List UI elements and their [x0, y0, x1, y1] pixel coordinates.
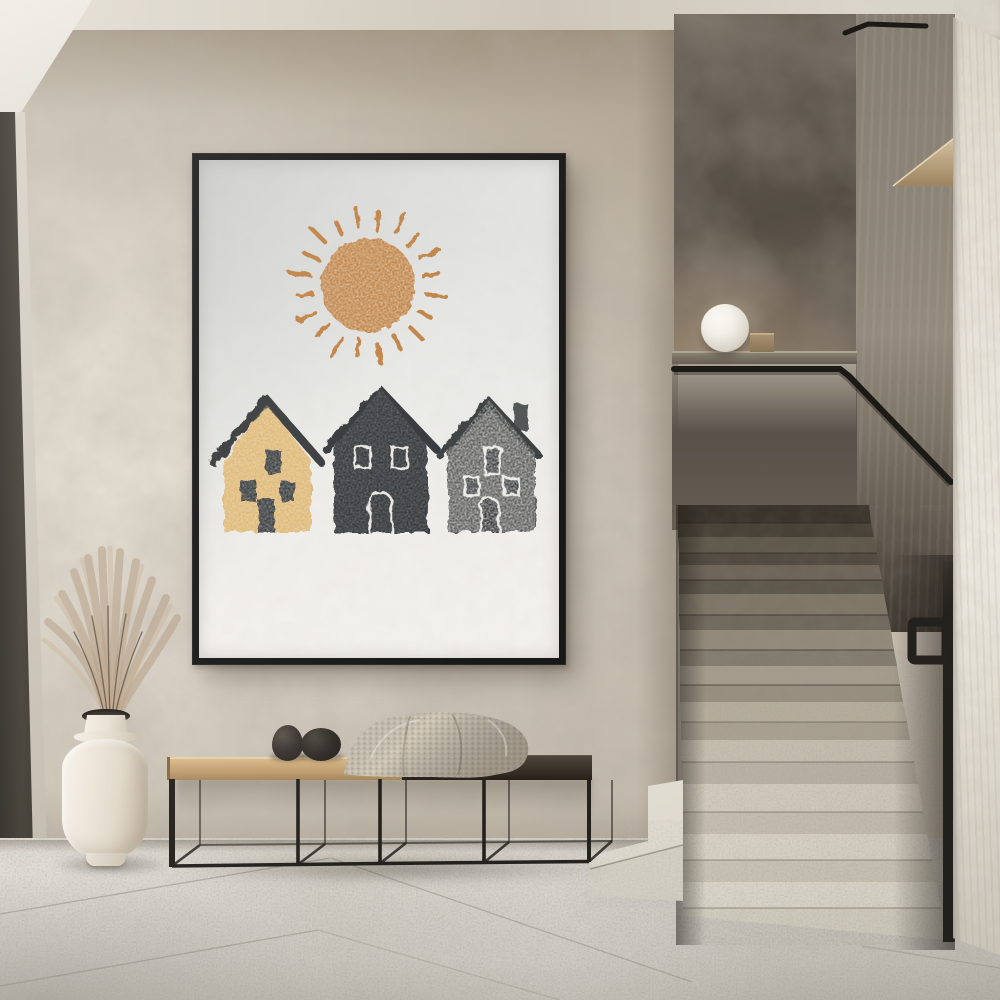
decor-stone-large [301, 728, 341, 761]
upper-floor-rail [845, 24, 926, 33]
poster-frame [192, 153, 566, 665]
vase-foot [86, 853, 126, 866]
poster-artwork [199, 160, 559, 658]
handrails [670, 15, 960, 495]
poster-paper [199, 160, 559, 658]
stair-handrail [674, 369, 951, 482]
right-foreground-wall [953, 0, 1000, 1000]
pampas-grass [25, 530, 200, 730]
decor-stone-small [272, 725, 303, 761]
bottom-wrap-steps [585, 778, 955, 908]
handrail-end-bracket [900, 610, 960, 672]
bench-metal-frame [160, 775, 630, 880]
ceramic-vase [62, 739, 148, 857]
interior-photo-scene [0, 0, 1000, 1000]
knit-blanket [335, 705, 540, 785]
